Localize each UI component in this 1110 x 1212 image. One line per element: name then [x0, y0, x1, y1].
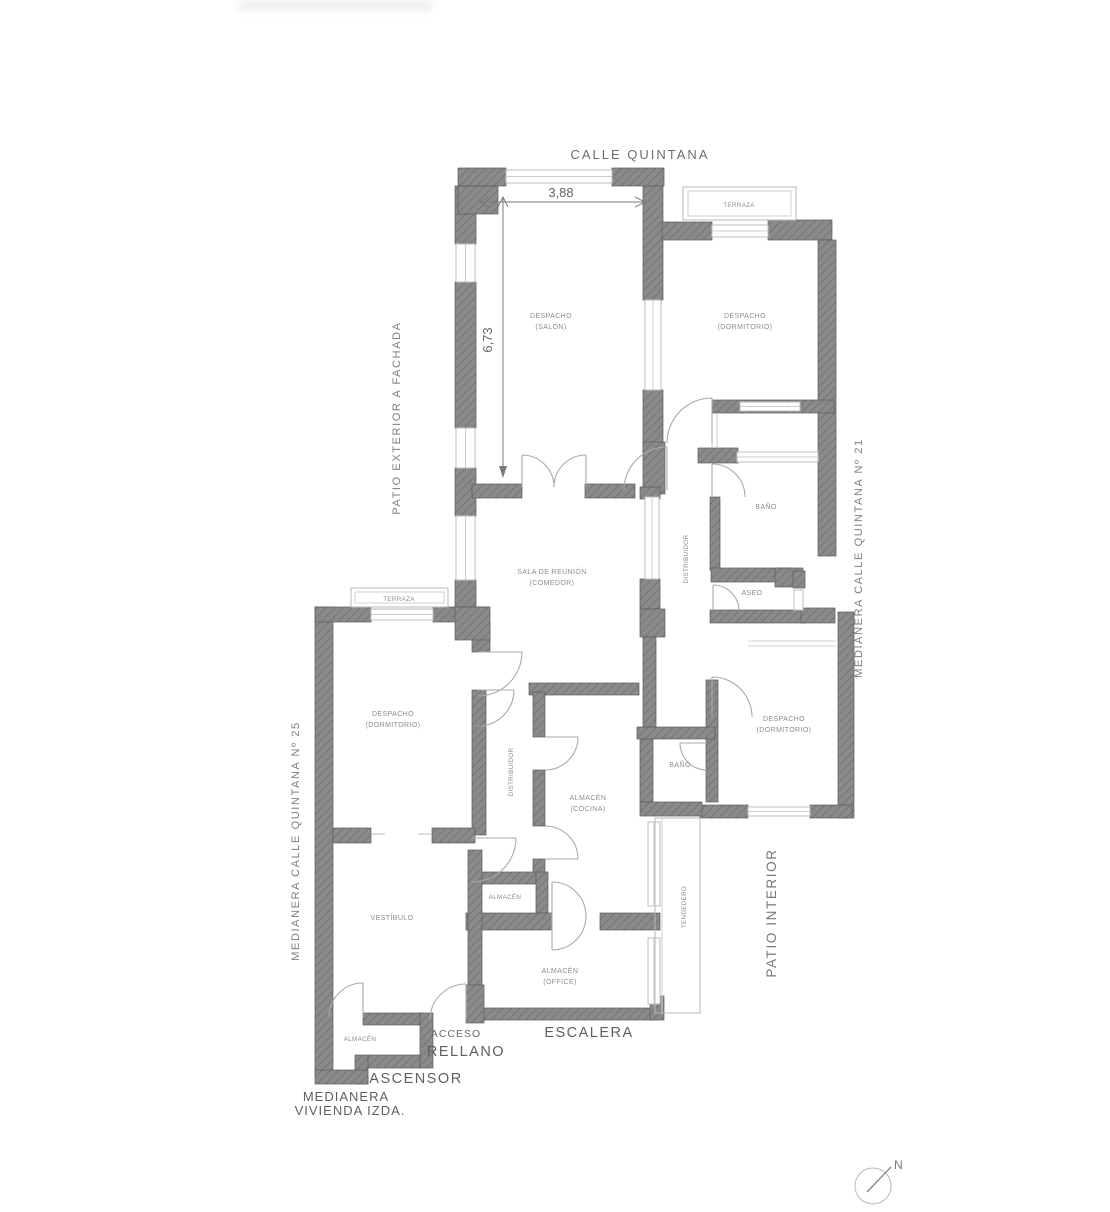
- acceso-label: ACCESO: [431, 1028, 481, 1040]
- bano-bottom-label: BAÑO: [669, 760, 691, 769]
- dorm-top-right-sublabel: (DORMITORIO): [718, 324, 773, 331]
- medianera-izda-label-1: MEDIANERA: [303, 1089, 389, 1104]
- cocina-label: ALMACÉN: [570, 793, 607, 802]
- street-label: CALLE QUINTANA: [570, 147, 709, 162]
- compass: N: [855, 1158, 903, 1204]
- bano-right-label: BAÑO: [755, 502, 777, 511]
- dimension-annotations: 3,88 6,73: [479, 185, 645, 478]
- patio-interior-label: PATIO INTERIOR: [764, 848, 779, 977]
- dorm-right-label: DESPACHO: [763, 716, 805, 723]
- escalera-label: ESCALERA: [544, 1025, 633, 1041]
- dorm-left-label: DESPACHO: [372, 711, 414, 718]
- windows-layer: [371, 170, 818, 1004]
- compass-north-label: N: [894, 1158, 903, 1172]
- almacen-bottom-left-label: ALMACÉN: [344, 1034, 377, 1043]
- office-label: ALMACÉN: [542, 966, 579, 975]
- medianera-izda-label-2: VIVIENDA IZDA.: [295, 1103, 406, 1118]
- floor-plan: 3,88 6,73 CALLE QUINTANA PATIO EXTERIOR …: [0, 0, 1110, 1212]
- almacen-mid-label: ALMACÉN: [489, 892, 522, 901]
- dorm-top-right-label: DESPACHO: [724, 313, 766, 320]
- distribuidor-right-label: DISTRIBUIDOR: [683, 534, 690, 583]
- aseo-label: ASEO: [741, 590, 762, 597]
- tendedero-label: TENDEDERO: [681, 886, 688, 928]
- dorm-left-sublabel: (DORMITORIO): [366, 722, 421, 729]
- floor-plan-svg: 3,88 6,73 CALLE QUINTANA PATIO EXTERIOR …: [0, 0, 1110, 1212]
- terraza-left-label: TERRAZA: [383, 596, 415, 603]
- office-sublabel: (OFFICE): [543, 979, 577, 986]
- comedor-label: SALA DE REUNIÓN: [517, 567, 586, 576]
- medianera-21-label: MEDIANERA CALLE QUINTANA Nº 21: [853, 438, 865, 677]
- comedor-sublabel: (COMEDOR): [530, 580, 575, 587]
- salon-sublabel: (SALÓN): [535, 322, 566, 331]
- dimension-depth-label: 6,73: [480, 327, 495, 352]
- medianera-25-label: MEDIANERA CALLE QUINTANA Nº 25: [290, 721, 302, 960]
- dimension-width-label: 3,88: [548, 185, 573, 200]
- vestibulo-label: VESTÍBULO: [371, 913, 414, 922]
- salon-label: DESPACHO: [530, 313, 572, 320]
- terraza-top-right-label: TERRAZA: [723, 202, 755, 209]
- cocina-sublabel: (COCINA): [570, 806, 605, 813]
- rellano-label: RELLANO: [427, 1044, 505, 1060]
- distribuidor-left-label: DISTRIBUIDOR: [508, 747, 515, 796]
- dorm-right-sublabel: (DORMITORIO): [757, 727, 812, 734]
- patio-exterior-label: PATIO EXTERIOR A FACHADA: [391, 321, 403, 514]
- ascensor-label: ASCENSOR: [369, 1071, 462, 1087]
